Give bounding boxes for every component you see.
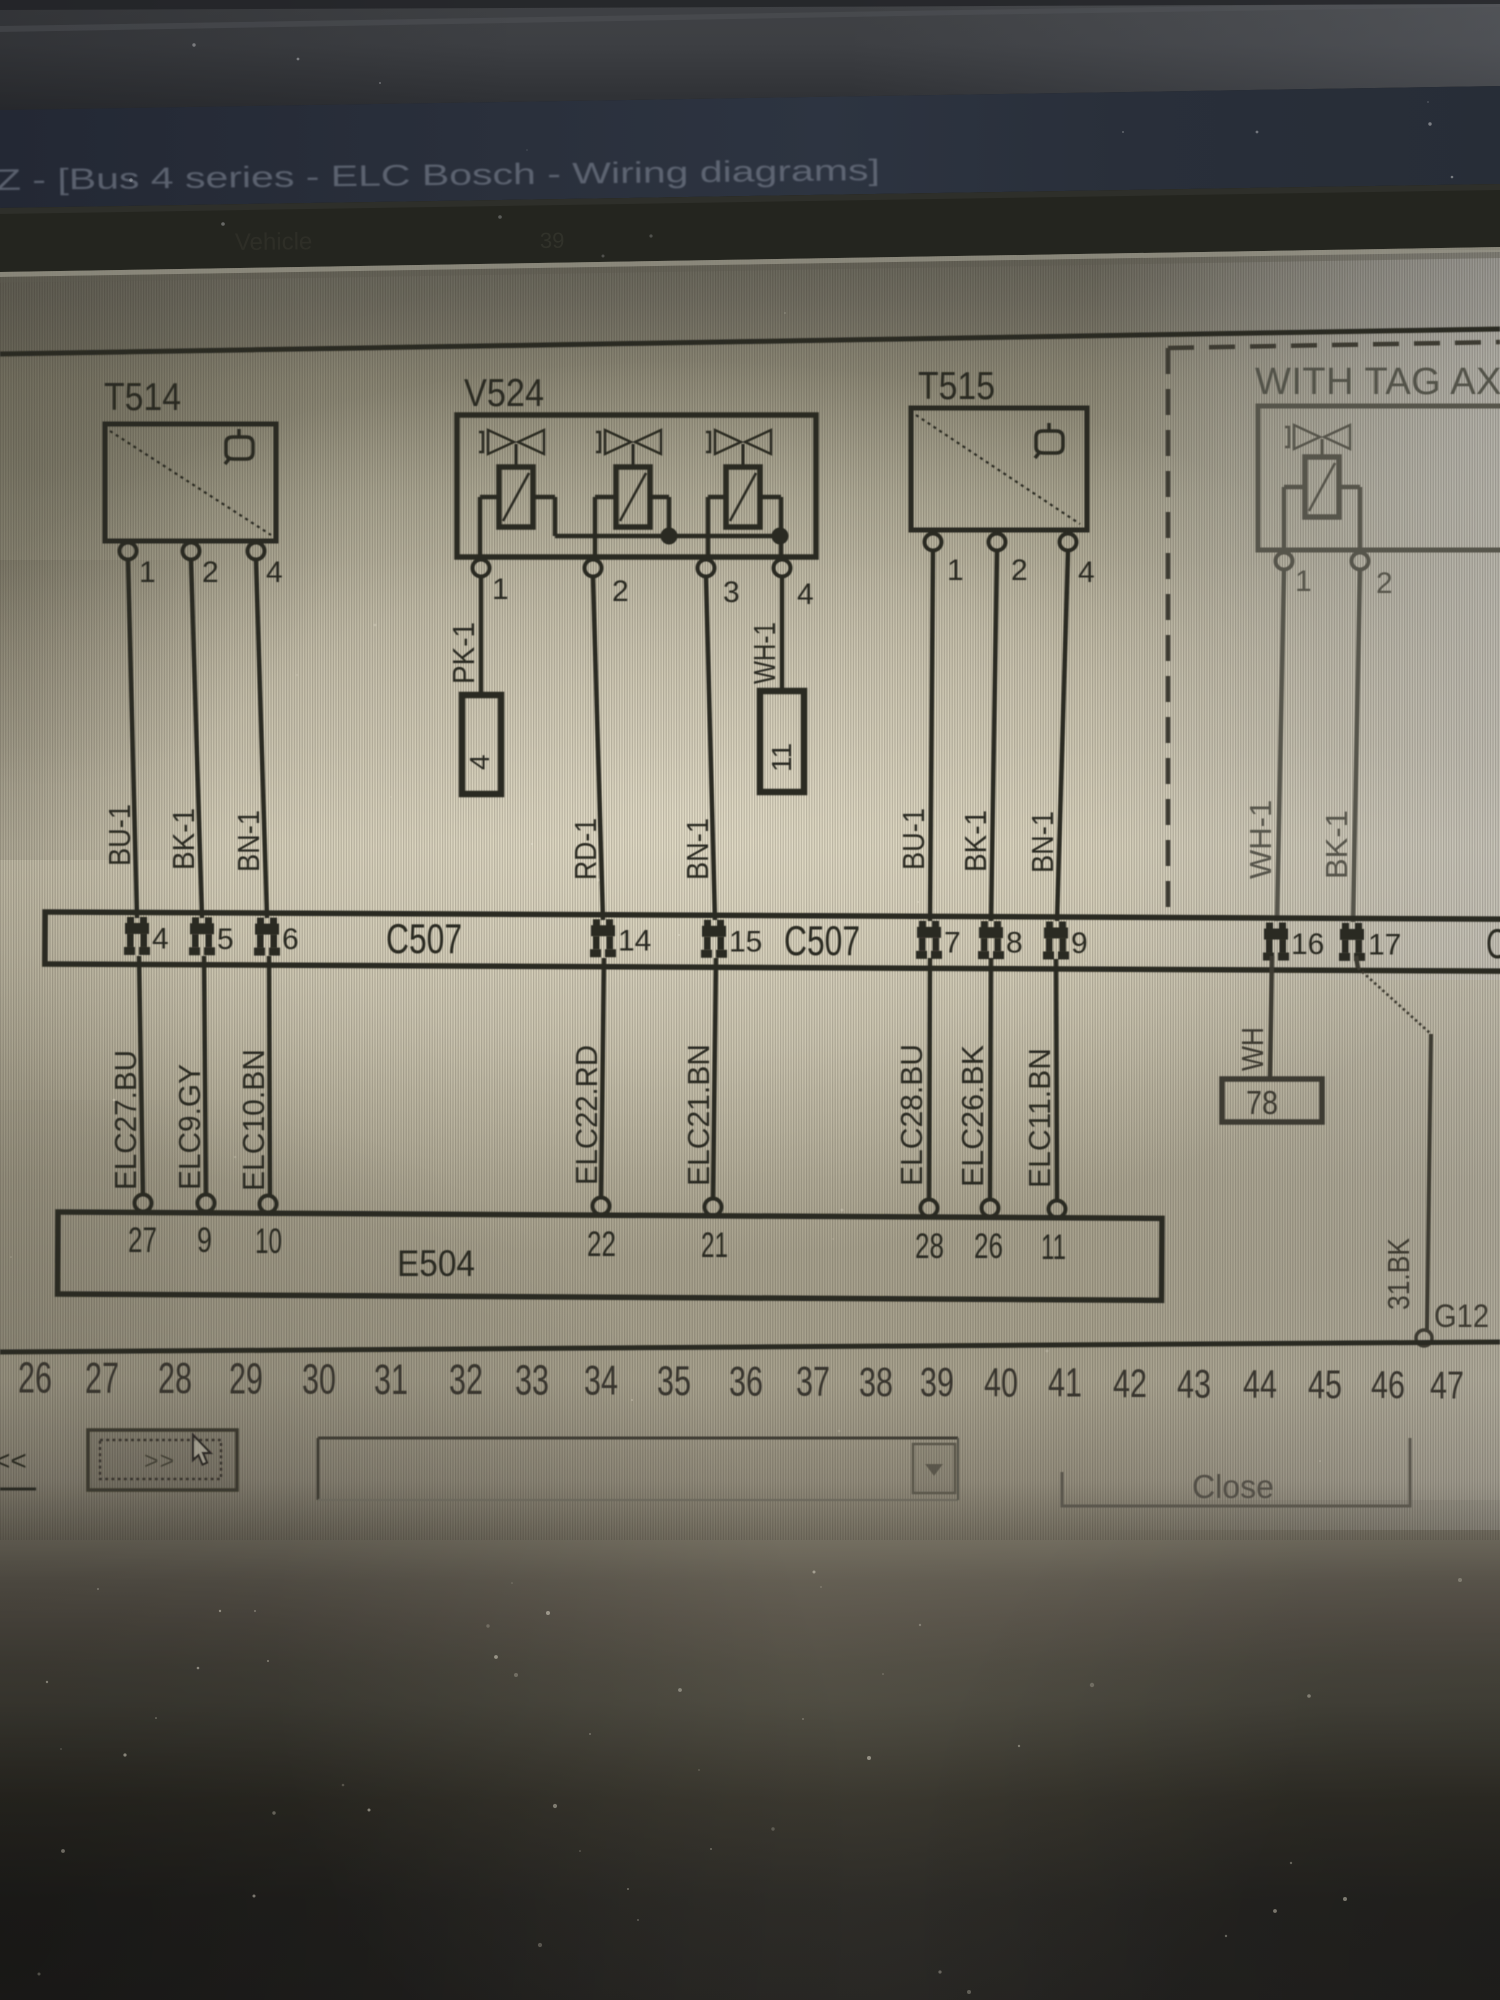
svg-text:6: 6 (282, 923, 299, 956)
svg-text:14: 14 (618, 925, 651, 958)
svg-text:ELC9.GY: ELC9.GY (172, 1064, 207, 1190)
svg-text:1: 1 (492, 573, 509, 606)
svg-text:31.BK: 31.BK (1381, 1238, 1416, 1310)
svg-text:G12: G12 (1434, 1298, 1489, 1334)
svg-text:4: 4 (464, 754, 495, 770)
svg-text:4: 4 (266, 556, 283, 589)
svg-text:27: 27 (85, 1354, 119, 1403)
svg-text:2: 2 (202, 556, 219, 589)
svg-text:ELC11.BN: ELC11.BN (1022, 1048, 1057, 1188)
svg-text:33: 33 (515, 1356, 549, 1403)
svg-text:44: 44 (1243, 1363, 1277, 1407)
svg-text:39: 39 (920, 1359, 954, 1405)
svg-text:21: 21 (701, 1226, 728, 1265)
svg-text:36: 36 (729, 1357, 763, 1404)
svg-text:BU-1: BU-1 (896, 808, 931, 870)
svg-text:BK-1: BK-1 (166, 808, 201, 870)
svg-text:32: 32 (449, 1356, 483, 1404)
svg-text:4: 4 (1078, 556, 1095, 589)
svg-text:ELC21.BN: ELC21.BN (681, 1044, 716, 1186)
svg-text:45: 45 (1308, 1363, 1342, 1407)
svg-text:BK-1: BK-1 (1319, 810, 1354, 879)
svg-text:30: 30 (302, 1356, 336, 1404)
svg-text:28: 28 (915, 1227, 944, 1266)
svg-text:1: 1 (947, 554, 964, 587)
svg-text:WH-1: WH-1 (747, 622, 782, 684)
svg-text:ELC22.RD: ELC22.RD (569, 1045, 604, 1185)
svg-text:C507: C507 (784, 917, 860, 964)
svg-text:10: 10 (255, 1222, 282, 1261)
svg-text:41: 41 (1048, 1360, 1082, 1406)
svg-text:Vehicle: Vehicle (235, 228, 313, 256)
svg-text:28: 28 (158, 1355, 192, 1403)
svg-text:5: 5 (217, 923, 234, 956)
svg-text:WH-1: WH-1 (1243, 800, 1278, 879)
svg-text:T515: T515 (918, 365, 995, 408)
svg-text:<<: << (0, 1445, 27, 1476)
svg-text:ELC28.BU: ELC28.BU (894, 1044, 929, 1186)
svg-text:2: 2 (1376, 567, 1393, 600)
svg-text:47: 47 (1430, 1364, 1464, 1407)
svg-text:ELC10.BN: ELC10.BN (236, 1049, 271, 1191)
svg-text:29: 29 (229, 1355, 263, 1403)
svg-text:16: 16 (1291, 928, 1324, 961)
svg-text:2: 2 (1011, 554, 1028, 587)
svg-text:42: 42 (1113, 1361, 1147, 1406)
svg-text:4: 4 (152, 922, 169, 955)
svg-text:43: 43 (1177, 1362, 1211, 1406)
svg-text:BK-1: BK-1 (958, 810, 993, 872)
svg-text:15: 15 (729, 925, 762, 958)
svg-text:Close: Close (1192, 1468, 1274, 1505)
svg-text:WITH TAG AXLE: WITH TAG AXLE (1255, 361, 1500, 403)
svg-text:>>: >> (144, 1447, 175, 1475)
svg-text:40: 40 (984, 1359, 1018, 1405)
svg-text:C5: C5 (1486, 920, 1500, 967)
svg-text:E504: E504 (397, 1243, 475, 1284)
svg-text:BN-1: BN-1 (231, 810, 266, 872)
svg-text:ELC26.BK: ELC26.BK (955, 1045, 990, 1187)
svg-text:C507: C507 (386, 915, 462, 962)
svg-text:34: 34 (584, 1357, 618, 1404)
svg-text:78: 78 (1246, 1084, 1278, 1121)
svg-text:11: 11 (1041, 1228, 1066, 1267)
svg-text:17: 17 (1368, 928, 1401, 961)
svg-text:4: 4 (797, 578, 814, 611)
svg-text:26: 26 (18, 1354, 52, 1403)
svg-text:T514: T514 (104, 376, 181, 419)
svg-text:11: 11 (766, 743, 797, 772)
svg-text:BN-1: BN-1 (1025, 811, 1060, 873)
svg-text:37: 37 (796, 1359, 830, 1405)
svg-text:39: 39 (540, 228, 565, 253)
svg-text:V524: V524 (464, 372, 544, 415)
svg-text:BN-1: BN-1 (680, 818, 715, 880)
svg-text:RD-1: RD-1 (568, 818, 603, 880)
svg-text:1: 1 (139, 556, 156, 589)
svg-text:46: 46 (1371, 1364, 1405, 1407)
svg-text:31: 31 (374, 1356, 408, 1404)
svg-text:38: 38 (859, 1359, 893, 1405)
svg-text:35: 35 (657, 1357, 691, 1404)
svg-text:WH: WH (1235, 1027, 1270, 1071)
svg-text:22: 22 (587, 1225, 616, 1264)
svg-text:BU-1: BU-1 (102, 804, 137, 866)
svg-text:26: 26 (974, 1227, 1003, 1266)
svg-text:9: 9 (1071, 927, 1088, 960)
svg-text:ELC27.BU: ELC27.BU (108, 1050, 143, 1190)
svg-text:1: 1 (1295, 565, 1312, 598)
svg-text:3: 3 (723, 576, 740, 609)
svg-text:9: 9 (197, 1221, 212, 1260)
svg-text:8: 8 (1006, 927, 1023, 960)
svg-text:2: 2 (612, 575, 629, 608)
svg-text:7: 7 (944, 926, 961, 959)
svg-text:27: 27 (128, 1221, 157, 1260)
svg-text:PK-1: PK-1 (446, 622, 481, 684)
